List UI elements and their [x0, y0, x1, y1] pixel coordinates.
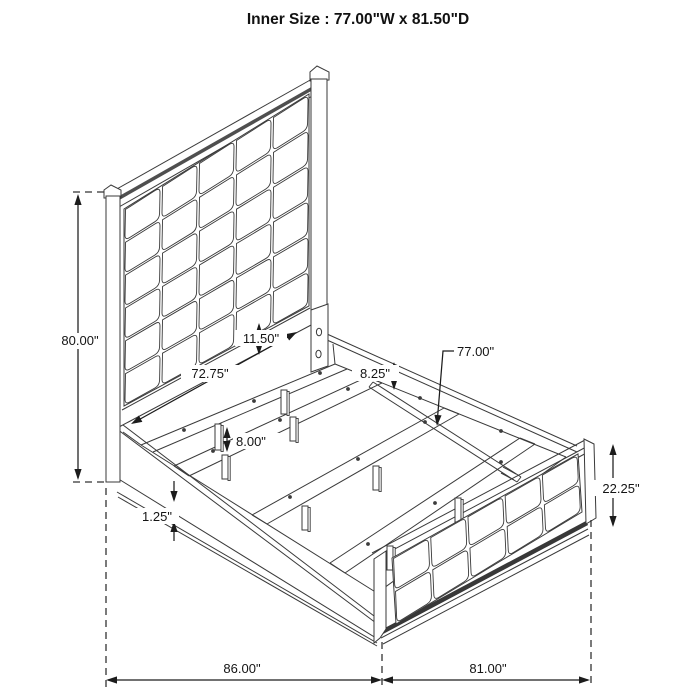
slat-leg	[290, 417, 296, 441]
dim-overall-width-label: 86.00"	[223, 661, 261, 676]
slat-leg-side	[379, 468, 381, 492]
slat-leg-side	[228, 457, 230, 481]
screw-dot	[499, 429, 503, 433]
bed-diagram-svg: 80.00" 72.75" 11.50" 8.25" 77.00" 8.00" …	[0, 0, 700, 700]
slat-leg-side	[308, 508, 310, 532]
arrowhead	[609, 444, 616, 455]
bed-frame-art	[104, 66, 596, 646]
slat-leg-side	[287, 392, 289, 416]
arrowhead	[106, 676, 117, 683]
slat-leg	[215, 424, 221, 450]
dim-rail-trim-label: 1.25"	[142, 509, 172, 524]
slat-leg	[455, 498, 461, 522]
line-art-segment	[517, 477, 521, 482]
line-art-segment	[444, 408, 459, 414]
screw-dot	[356, 457, 360, 461]
line-art-segment	[369, 387, 517, 482]
line-art-segment	[520, 438, 535, 444]
dim-slat-length-label: 77.00"	[457, 344, 495, 359]
slat-leg	[373, 466, 379, 490]
line-art-segment	[252, 515, 267, 524]
rail-mount-bracket	[311, 304, 328, 372]
line-art-segment	[327, 340, 577, 452]
screw-dot	[252, 399, 256, 403]
dim-overall-depth-label: 81.00"	[469, 661, 507, 676]
diagram-title: Inner Size : 77.00"W x 81.50"D	[247, 11, 469, 28]
arrowhead	[382, 676, 393, 683]
screw-dot	[366, 542, 370, 546]
arrowhead	[223, 427, 230, 438]
slat-leg-side	[296, 419, 298, 443]
arrowhead	[579, 676, 590, 683]
dim-rail-to-slat-label: 8.25"	[360, 366, 390, 381]
dim-overall-height-label: 80.00"	[61, 333, 99, 348]
screw-dot	[433, 501, 437, 505]
screw-dot	[423, 420, 427, 424]
line-art-segment	[252, 408, 444, 515]
arrowhead	[74, 194, 81, 205]
line-art-segment	[174, 377, 367, 466]
line-art-segment	[123, 432, 141, 445]
slat-leg	[302, 506, 308, 530]
screw-dot	[499, 460, 503, 464]
arrowhead	[286, 332, 297, 340]
bracket-hole	[316, 350, 321, 358]
screw-dot	[211, 449, 215, 453]
arrowhead	[74, 469, 81, 480]
screw-dot	[418, 396, 422, 400]
line-art-segment	[174, 466, 189, 476]
slat-leg	[281, 390, 287, 414]
arrowhead	[223, 441, 230, 452]
screw-dot	[288, 495, 292, 499]
dim-leg-height-label: 8.00"	[236, 434, 266, 449]
dim-footboard-height-label: 22.25"	[602, 481, 640, 496]
screw-dot	[182, 428, 186, 432]
arrowhead	[371, 676, 382, 683]
footboard-left-post	[374, 551, 386, 643]
slat-leg-side	[221, 426, 223, 452]
line-art-segment	[503, 467, 516, 474]
line-art-segment	[369, 382, 373, 387]
arrowhead	[170, 491, 177, 502]
line-art-segment	[117, 429, 376, 623]
line-art-segment	[333, 344, 335, 364]
arrowhead	[609, 516, 616, 527]
dimension-diagram-page: 80.00" 72.75" 11.50" 8.25" 77.00" 8.00" …	[0, 0, 700, 700]
slat-leg	[222, 455, 228, 479]
dim-headboard-rail-label: 11.50"	[243, 331, 280, 346]
screw-dot	[318, 371, 322, 375]
dim-headboard-width-label: 72.75"	[191, 366, 229, 381]
line-art-segment	[330, 563, 345, 573]
screw-dot	[346, 387, 350, 391]
headboard-left-post	[106, 196, 120, 482]
screw-dot	[278, 418, 282, 422]
bracket-hole	[316, 328, 321, 336]
